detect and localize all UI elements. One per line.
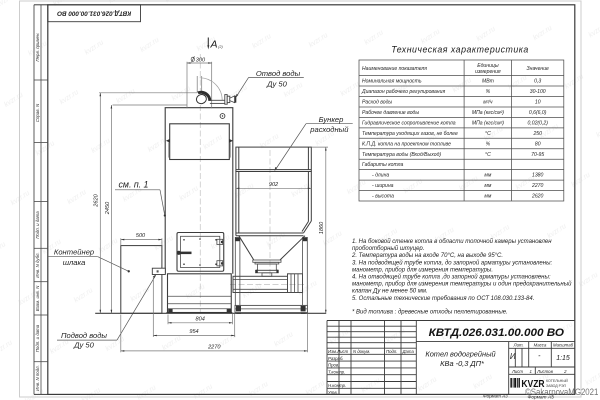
svg-text:0,3: 0,3 [534,79,541,85]
svg-text:- длина: - длина [372,173,389,179]
svg-text:МПа (кгс/см²): МПа (кгс/см²) [472,120,504,126]
svg-text:Т.контр.: Т.контр. [328,369,345,374]
svg-text:2620: 2620 [531,194,543,200]
svg-text:см. п. 1: см. п. 1 [119,179,149,189]
svg-text:Масштаб: Масштаб [553,343,574,348]
svg-text:%: % [486,141,491,147]
svg-text:КВа -0,3 ДП*: КВа -0,3 ДП* [440,359,485,368]
svg-text:мм: мм [484,183,491,189]
svg-text:Ду 50: Ду 50 [73,341,95,350]
svg-text:°С: °С [485,131,491,137]
svg-text:мм: мм [484,173,491,179]
svg-text:Гидравлическое сопротивление к: Гидравлическое сопротивление котла [362,120,456,126]
svg-text:Номинальная мощность: Номинальная мощность [362,79,422,85]
svg-text:манометр, прибор для измерения: манометр, прибор для измерения температу… [352,281,572,288]
svg-text:Изм.Лист: Изм.Лист [328,349,349,354]
svg-text:250: 250 [532,131,542,137]
svg-text:клапан Ду не менее 50 мм.: клапан Ду не менее 50 мм. [352,289,428,295]
svg-text:измерения: измерения [475,69,501,75]
svg-text:Значение: Значение [527,66,550,72]
svg-text:N докум.: N докум. [353,349,370,354]
svg-text:Рабочее давление воды: Рабочее давление воды [362,110,419,116]
svg-text:Контейнер: Контейнер [54,247,94,256]
svg-text:манометр, прибор для измерения: манометр, прибор для измерения температу… [352,267,493,273]
svg-text:4. На отводящей трубе котла ,: 4. На отводящей трубе котла ,до запорной… [352,274,551,281]
svg-text:Лит.: Лит. [513,343,524,348]
svg-text:Расход воды: Расход воды [362,100,392,106]
svg-text:шлака: шлака [63,258,86,267]
svg-text:Листов: Листов [536,369,553,374]
svg-text:5. Остальные технические треб: 5. Остальные технические требования по О… [352,296,534,302]
svg-text:КВТД.026.031.00.000 ВО: КВТД.026.031.00.000 ВО [56,9,131,16]
svg-text:Масса: Масса [534,343,547,348]
svg-text:2270: 2270 [207,345,221,351]
svg-text:Подп.: Подп. [386,349,397,354]
svg-text:Н.контр.: Н.контр. [328,383,346,388]
svg-text:1380: 1380 [532,173,543,179]
svg-text:Диапазон рабочего регулировани: Диапазон рабочего регулирования [361,89,445,95]
svg-text:°С: °С [485,152,491,158]
svg-text:Подп. и дата: Подп. и дата [35,324,40,352]
svg-text:Формат А3: Формат А3 [483,393,508,398]
svg-text:804: 804 [196,316,205,322]
svg-text:80: 80 [535,141,541,147]
svg-text:1:15: 1:15 [556,355,570,362]
svg-text:К.П.Д. котла на проектном топл: К.П.Д. котла на проектном топливе [362,141,451,147]
svg-text:Подвод воды: Подвод воды [61,331,107,340]
svg-text:1. На боковой стенке котла в: 1. На боковой стенке котла в области топ… [352,238,552,245]
svg-text:- высота: - высота [372,194,394,200]
svg-text:©SakarpovaMG2021: ©SakarpovaMG2021 [525,387,598,397]
svg-text:м³/ч: м³/ч [483,100,493,106]
svg-text:Ду 50: Ду 50 [266,80,288,89]
svg-text:пробоотборный штуцер.: пробоотборный штуцер. [352,245,424,252]
svg-text:Дата: Дата [402,349,415,354]
svg-text:2620: 2620 [94,193,100,207]
svg-text:Температура уходящих газов, не: Температура уходящих газов, не более [362,131,458,137]
svg-text:МПа (кгс/см²): МПа (кгс/см²) [472,110,504,116]
svg-text:Инв. N дубл.: Инв. N дубл. [35,252,40,277]
svg-text:расходный: расходный [309,125,349,134]
svg-text:%: % [486,89,491,95]
svg-text:Взам. инв. N: Взам. инв. N [35,285,40,311]
svg-text:мм: мм [484,194,491,200]
svg-text:Утв.: Утв. [328,390,338,395]
svg-text:Подп. и дата: Подп. и дата [35,211,40,239]
svg-text:10: 10 [535,100,541,106]
svg-text:954: 954 [189,329,198,335]
svg-text:2. Температура воды на входе: 2. Температура воды на входе 70°С, на вы… [351,253,503,259]
svg-text:- ширина: - ширина [372,183,394,189]
svg-text:Бункер: Бункер [319,115,344,124]
svg-text:(2): (2) [218,45,222,49]
svg-text:Справ. N: Справ. N [35,103,40,122]
svg-text:70-95: 70-95 [531,152,544,158]
svg-text:0,02(0,2): 0,02(0,2) [528,120,549,126]
svg-text:Пров.: Пров. [328,363,339,368]
svg-text:Наименование показателя: Наименование показателя [362,66,427,72]
svg-text:Техническая характеристика: Техническая характеристика [391,45,529,55]
svg-text:КВТД.026.031.00.000 ВО: КВТД.026.031.00.000 ВО [429,327,565,339]
svg-text:Перв. примен.: Перв. примен. [35,32,40,61]
svg-text:2450: 2450 [105,201,111,215]
svg-text:Инв. N подл.: Инв. N подл. [35,365,40,391]
svg-text:902: 902 [269,182,279,188]
svg-text:3. На подводящей трубе котла,: 3. На подводящей трубе котла, до запорно… [352,259,552,266]
svg-text:Разраб.: Разраб. [328,356,344,361]
svg-text:Котел водогрейный: Котел водогрейный [425,350,495,359]
svg-text:500: 500 [136,233,146,239]
svg-text:А: А [210,39,218,51]
svg-text:300: 300 [196,57,206,63]
svg-text:* Вид топлива : древесные от: * Вид топлива : древесные отходы пеллети… [352,310,508,316]
svg-text:Отвод воды: Отвод воды [256,69,301,78]
svg-text:Температура воды (Вход/Выход): Температура воды (Вход/Выход) [362,152,441,158]
svg-text:МВт: МВт [482,79,494,85]
svg-text:Лист: Лист [511,369,523,374]
svg-text:Габариты котла: Габариты котла [362,162,403,168]
svg-text:Единицы: Единицы [477,63,499,69]
svg-text:И: И [510,352,516,361]
svg-text:0,6(6,0): 0,6(6,0) [529,110,547,116]
svg-text:2270: 2270 [531,183,543,189]
svg-text:30-100: 30-100 [530,89,546,95]
svg-text:1860: 1860 [319,221,325,234]
svg-text:КОТЕЛЬНЫЙ: КОТЕЛЬНЫЙ [546,379,568,383]
